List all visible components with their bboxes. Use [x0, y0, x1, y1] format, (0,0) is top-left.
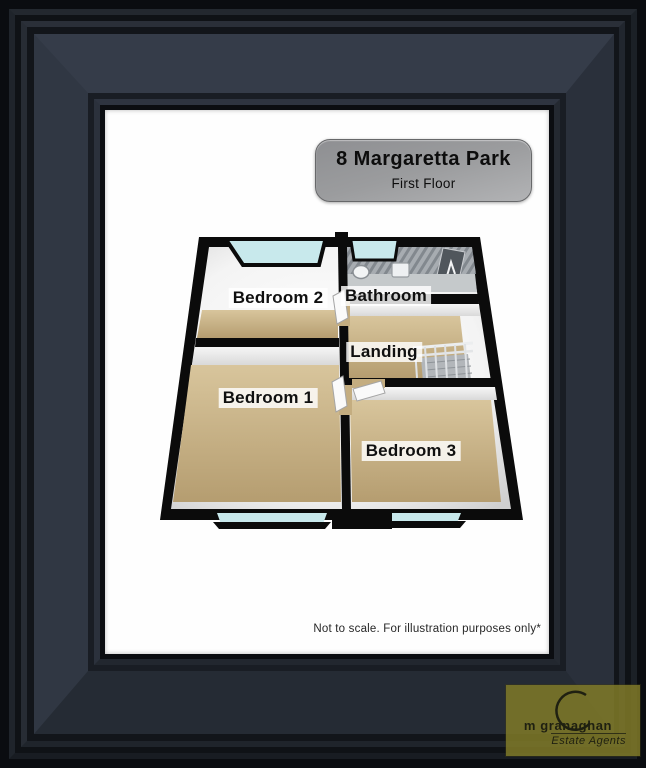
logo-name: m granaghan: [506, 718, 630, 733]
toilet: [392, 263, 409, 277]
floorplan-svg: [155, 230, 527, 532]
logo-tagline: Estate Agents: [551, 733, 626, 747]
room-label-bedroom1: Bedroom 1: [219, 388, 318, 408]
bedroom2-floor: [197, 310, 338, 338]
picture-mat: 8 Margaretta Park First Floor: [105, 110, 549, 654]
room-label-landing: Landing: [346, 342, 422, 362]
bedroom3-window-sill: [385, 521, 466, 528]
bedroom1-window-sill: [213, 522, 331, 529]
bottom-wall-stub: [332, 513, 392, 529]
address-plaque: 8 Margaretta Park First Floor: [315, 139, 532, 202]
bedroom1-floor: [173, 365, 341, 502]
disclaimer-text: Not to scale. For illustration purposes …: [313, 623, 541, 635]
top-wall-stub: [335, 232, 348, 245]
wall-bed2-bed1: [195, 338, 339, 347]
sink: [353, 266, 369, 279]
wall-face-bed1: [192, 347, 339, 365]
room-label-bedroom3: Bedroom 3: [362, 441, 461, 461]
bathroom-window-glass: [351, 241, 398, 260]
room-label-bathroom: Bathroom: [341, 286, 431, 306]
floorplan-3d: Bedroom 2 Bathroom Landing Bedroom 1 Bed…: [155, 230, 527, 532]
framed-floorplan-photo: 8 Margaretta Park First Floor: [0, 0, 646, 768]
room-label-bedroom2: Bedroom 2: [229, 288, 328, 308]
floor-subtitle: First Floor: [316, 176, 531, 191]
estate-agent-logo: m granaghan Estate Agents: [506, 685, 640, 756]
address-title: 8 Margaretta Park: [316, 148, 531, 171]
